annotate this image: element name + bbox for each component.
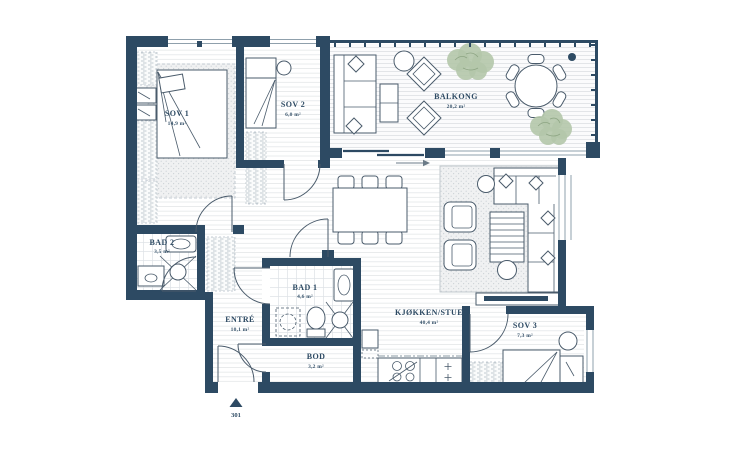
window-sov2	[270, 36, 316, 47]
wardrobe-icon	[470, 362, 503, 383]
side-table-icon	[478, 176, 495, 193]
pillow-icon	[246, 58, 276, 78]
sliding-door-balcony	[342, 148, 425, 158]
room-name: BALKONG	[434, 92, 478, 101]
room-name: BOD	[307, 352, 326, 361]
unit-number: 301	[231, 412, 241, 419]
room-area: 3,5 m²	[154, 249, 170, 255]
sink-icon	[334, 269, 354, 301]
stool-icon	[498, 261, 517, 280]
room-name: BAD 2	[150, 238, 175, 247]
dining-set-icon	[333, 176, 407, 244]
room-area: 14,9 m²	[168, 121, 187, 127]
room-name: ENTRÉ	[225, 314, 255, 324]
washer-icon	[138, 266, 164, 286]
room-area: 10,1 m²	[231, 327, 250, 333]
window-sov1	[168, 36, 232, 47]
room-area: 4,6 m²	[297, 294, 313, 300]
tv-console-icon	[476, 293, 560, 305]
room-area: 40,4 m²	[420, 320, 439, 326]
window-living-right	[556, 175, 574, 240]
wardrobe-icon	[207, 237, 235, 291]
floorplan-canvas: SOV 1 14,9 m² SOV 2 6,0 m² BALKONG 20,2 …	[0, 0, 730, 450]
single-bed-icon	[246, 78, 276, 128]
floorplan-drawing: SOV 1 14,9 m² SOV 2 6,0 m² BALKONG 20,2 …	[0, 0, 730, 450]
room-name: SOV 3	[513, 321, 537, 330]
dresser-icon	[134, 105, 156, 120]
room-name: SOV 1	[165, 109, 189, 118]
toilet-icon	[307, 307, 325, 337]
stool-icon	[559, 332, 577, 350]
room-area: 7,3 m²	[517, 333, 533, 339]
entrance-arrow-icon	[230, 398, 243, 407]
coffee-table-icon	[490, 212, 524, 262]
armchair-icon	[444, 202, 476, 232]
balcony-railing	[330, 40, 598, 43]
bed-icon	[503, 350, 560, 384]
window-sov3-right	[584, 330, 598, 372]
cabinet-icon	[362, 330, 378, 348]
room-area: 20,2 m²	[447, 104, 466, 110]
window-balcony-1	[445, 148, 490, 158]
dresser-icon	[134, 88, 156, 103]
armchair-icon	[444, 240, 476, 270]
room-bad1-block	[262, 258, 361, 346]
unit-marker: 301	[230, 398, 243, 419]
drain-icon	[568, 53, 576, 61]
nightstand-icon	[560, 356, 583, 384]
side-table-icon	[394, 51, 414, 71]
room-name: BAD 1	[293, 283, 318, 292]
room-area: 3,2 m²	[308, 364, 324, 370]
room-area: 6,0 m²	[285, 112, 301, 118]
stool-icon	[277, 61, 291, 75]
room-name: SOV 2	[281, 100, 305, 109]
window-balcony-2	[500, 148, 586, 158]
balcony-railing	[595, 40, 598, 148]
room-name: KJØKKEN/STUE	[395, 308, 463, 317]
